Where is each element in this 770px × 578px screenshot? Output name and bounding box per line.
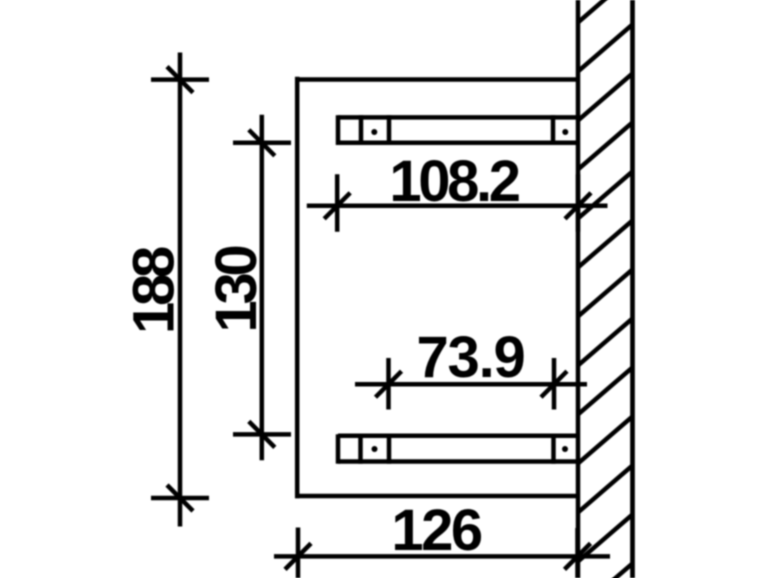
svg-text:73.9: 73.9 — [416, 325, 524, 390]
svg-text:188: 188 — [122, 247, 187, 334]
svg-text:126: 126 — [391, 498, 482, 563]
svg-text:108.2: 108.2 — [389, 149, 518, 214]
svg-text:130: 130 — [204, 247, 269, 333]
